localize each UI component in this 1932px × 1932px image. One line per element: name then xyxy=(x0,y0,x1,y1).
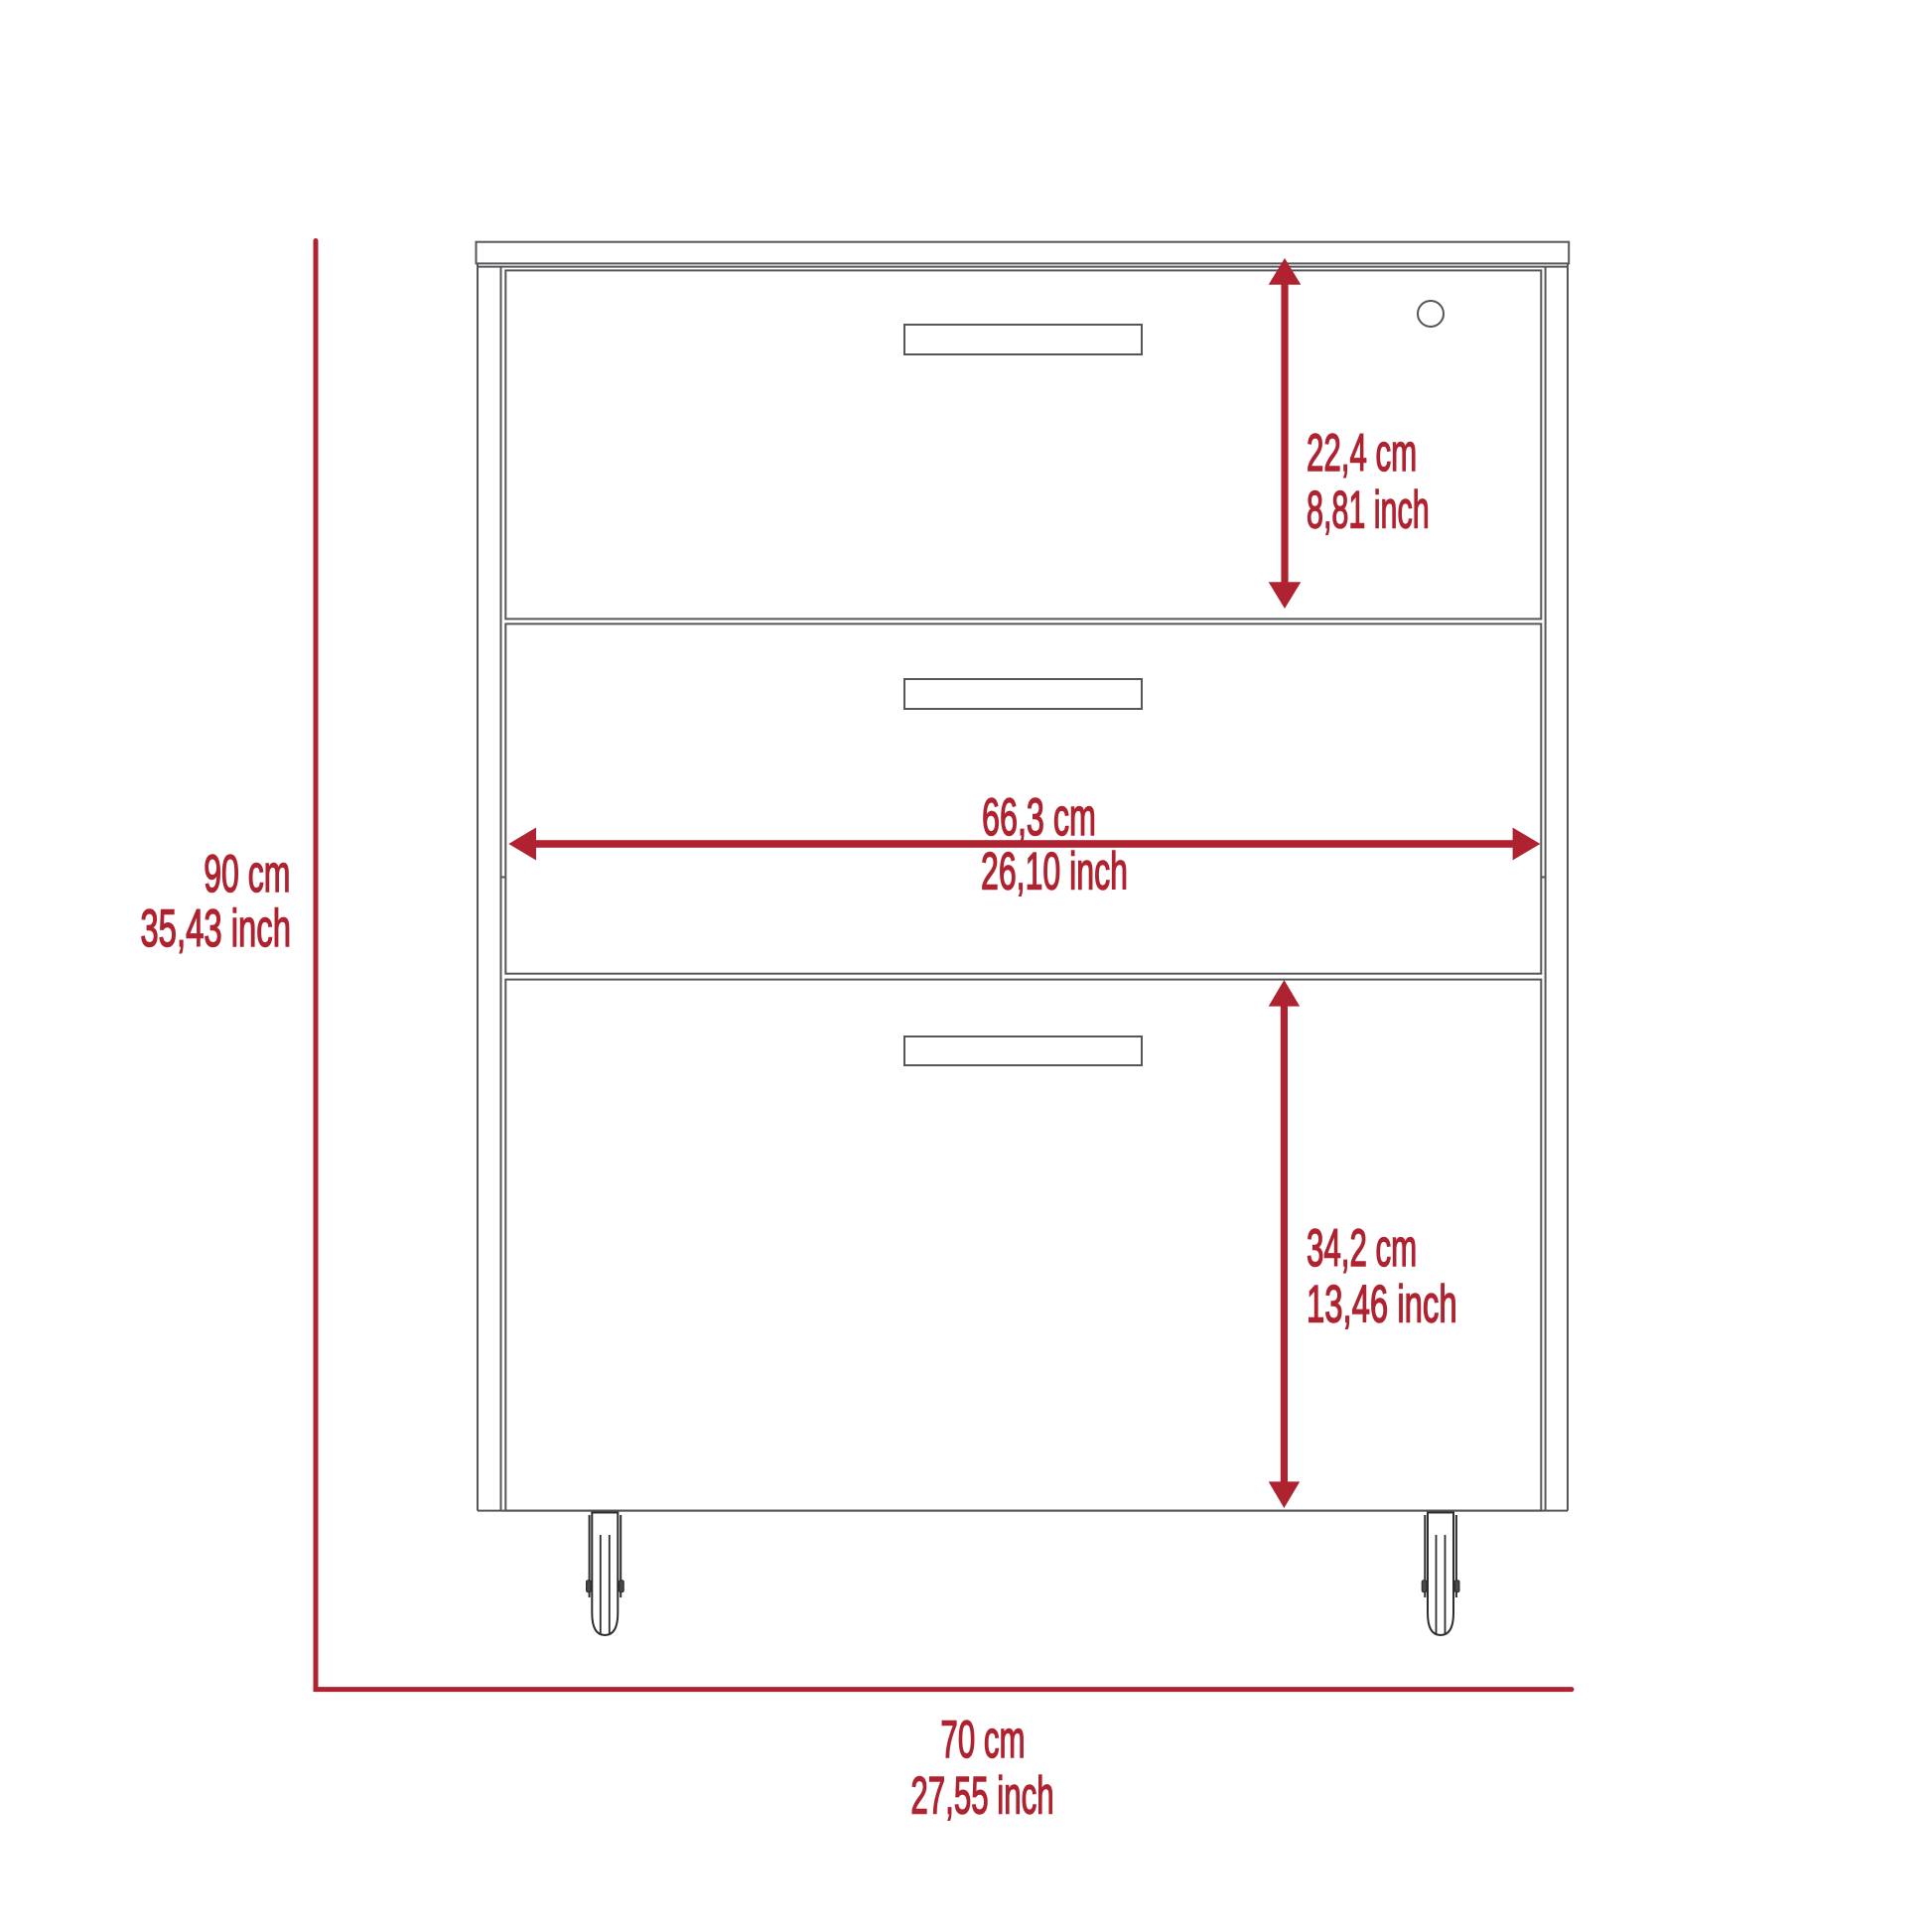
svg-text:34,2 cm: 34,2 cm xyxy=(1307,1220,1417,1278)
svg-text:13,46 inch: 13,46 inch xyxy=(1307,1276,1457,1334)
svg-text:35,43 inch: 35,43 inch xyxy=(140,899,291,958)
svg-text:70 cm: 70 cm xyxy=(940,1712,1025,1769)
svg-text:90 cm: 90 cm xyxy=(204,845,290,903)
svg-text:22,4 cm: 22,4 cm xyxy=(1307,425,1417,483)
svg-text:66,3 cm: 66,3 cm xyxy=(982,788,1096,847)
svg-text:26,10 inch: 26,10 inch xyxy=(981,842,1128,900)
svg-text:27,55 inch: 27,55 inch xyxy=(910,1767,1053,1825)
svg-text:8,81 inch: 8,81 inch xyxy=(1307,482,1430,540)
